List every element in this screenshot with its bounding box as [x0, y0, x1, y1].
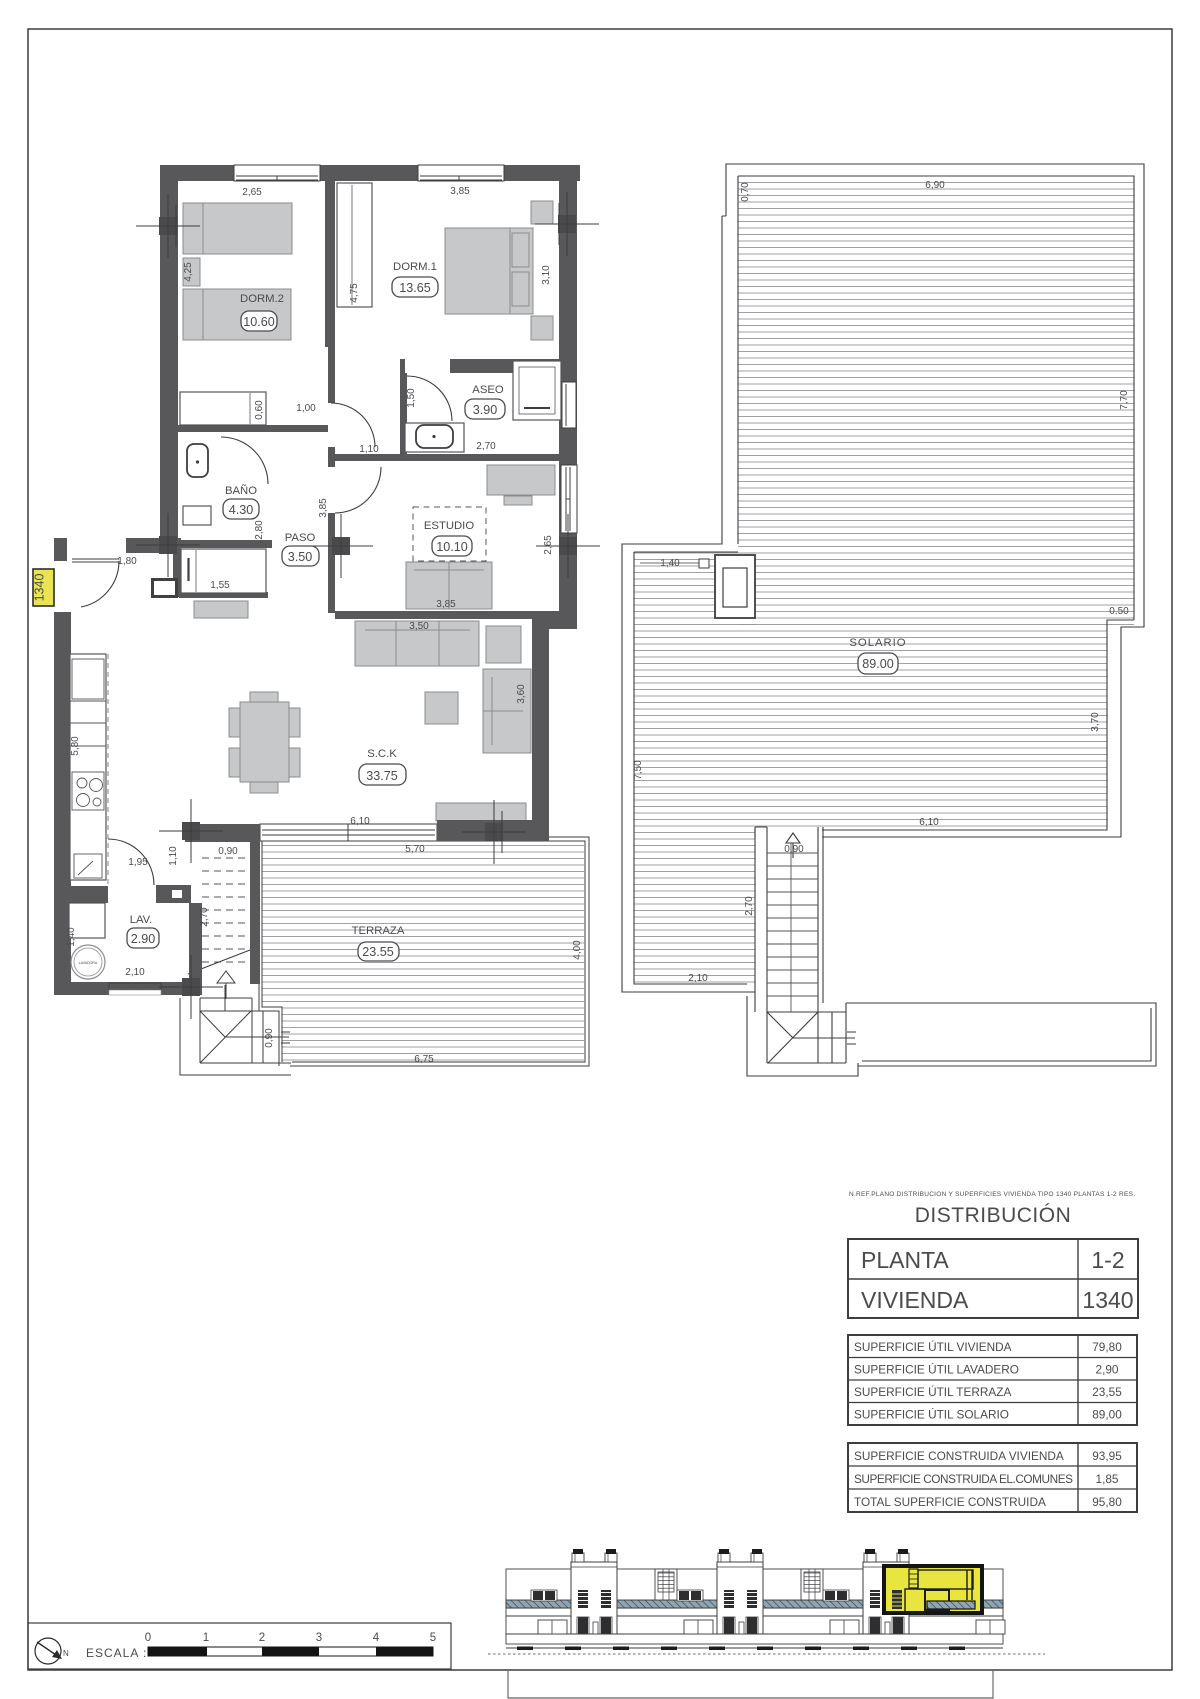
svg-text:2,70: 2,70: [744, 896, 755, 916]
svg-text:2: 2: [259, 1632, 265, 1644]
svg-text:23,55: 23,55: [1092, 1385, 1122, 1399]
svg-text:2,90: 2,90: [1096, 1363, 1119, 1377]
svg-text:13.65: 13.65: [399, 281, 431, 295]
svg-text:SUPERFICIE ÚTIL SOLARIO: SUPERFICIE ÚTIL SOLARIO: [854, 1408, 1009, 1422]
svg-text:SUPERFICIE CONSTRUIDA EL.COMUN: SUPERFICIE CONSTRUIDA EL.COMUNES: [854, 1472, 1073, 1486]
svg-text:7,70: 7,70: [1119, 390, 1130, 410]
svg-text:2.90: 2.90: [131, 932, 156, 946]
svg-text:93,95: 93,95: [1092, 1449, 1122, 1463]
svg-text:TERRAZA: TERRAZA: [352, 925, 405, 937]
svg-text:0: 0: [145, 1632, 151, 1644]
svg-text:3,85: 3,85: [436, 599, 456, 610]
svg-text:0,60: 0,60: [254, 400, 265, 420]
svg-text:1-2: 1-2: [1091, 1247, 1124, 1273]
svg-text:1,10: 1,10: [359, 444, 379, 455]
svg-text:ASEO: ASEO: [472, 384, 504, 396]
svg-text:6,10: 6,10: [919, 817, 939, 828]
svg-text:4: 4: [373, 1632, 380, 1644]
svg-text:SOLARIO: SOLARIO: [849, 637, 906, 649]
svg-text:VIVIENDA: VIVIENDA: [861, 1287, 969, 1313]
svg-text:3,50: 3,50: [409, 621, 429, 632]
svg-text:1,10: 1,10: [168, 846, 179, 866]
svg-text:2,65: 2,65: [543, 535, 554, 555]
svg-text:PASO: PASO: [285, 532, 316, 544]
svg-text:1,80: 1,80: [117, 556, 137, 567]
svg-text:1340: 1340: [33, 574, 47, 602]
svg-text:4,00: 4,00: [572, 940, 583, 960]
svg-text:1,40: 1,40: [66, 927, 77, 947]
svg-text:0,90: 0,90: [218, 846, 238, 857]
svg-text:LAVADORA: LAVADORA: [79, 961, 98, 965]
svg-text:LAV.: LAV.: [130, 914, 153, 926]
svg-text:3,85: 3,85: [318, 498, 329, 518]
svg-text:1,40: 1,40: [660, 558, 680, 569]
svg-text:SUPERFICIE ÚTIL TERRAZA: SUPERFICIE ÚTIL TERRAZA: [854, 1385, 1011, 1399]
svg-text:1: 1: [203, 1632, 209, 1644]
svg-text:2,65: 2,65: [242, 187, 262, 198]
svg-text:0,90: 0,90: [264, 1028, 275, 1048]
svg-text:1,00: 1,00: [296, 403, 316, 414]
svg-text:5,70: 5,70: [405, 844, 425, 855]
svg-text:89,00: 89,00: [1092, 1408, 1122, 1422]
svg-text:BAÑO: BAÑO: [225, 484, 257, 497]
svg-text:1,95: 1,95: [128, 857, 148, 868]
svg-text:ESTUDIO: ESTUDIO: [424, 520, 474, 532]
svg-text:3,85: 3,85: [450, 186, 470, 197]
svg-text:1340: 1340: [1082, 1287, 1133, 1313]
svg-text:DISTRIBUCIÓN: DISTRIBUCIÓN: [915, 1204, 1072, 1227]
svg-text:2,70: 2,70: [199, 907, 210, 927]
svg-text:PLANTA: PLANTA: [861, 1247, 949, 1273]
svg-text:N: N: [63, 1649, 69, 1658]
svg-text:2,70: 2,70: [476, 441, 496, 452]
svg-text:3,60: 3,60: [516, 684, 527, 704]
svg-text:10.60: 10.60: [243, 315, 275, 329]
svg-text:2,80: 2,80: [254, 520, 265, 540]
svg-text:0,90: 0,90: [784, 844, 804, 855]
svg-text:10.10: 10.10: [436, 540, 468, 554]
svg-text:DORM.2: DORM.2: [240, 293, 284, 305]
svg-text:SUPERFICIE ÚTIL LAVADERO: SUPERFICIE ÚTIL LAVADERO: [854, 1363, 1019, 1377]
svg-text:3: 3: [316, 1632, 322, 1644]
svg-text:S.C.K: S.C.K: [367, 748, 397, 760]
svg-text:DORM.1: DORM.1: [393, 261, 437, 273]
svg-text:SUPERFICIE ÚTIL VIVIENDA: SUPERFICIE ÚTIL VIVIENDA: [854, 1340, 1012, 1354]
svg-text:33.75: 33.75: [366, 769, 398, 783]
svg-text:95,80: 95,80: [1092, 1495, 1122, 1509]
svg-text:4,25: 4,25: [183, 262, 194, 282]
svg-text:79,80: 79,80: [1092, 1340, 1122, 1354]
svg-text:1,55: 1,55: [210, 580, 230, 591]
svg-text:1,50: 1,50: [406, 388, 417, 408]
svg-text:3,10: 3,10: [541, 265, 552, 285]
svg-text:2,10: 2,10: [125, 967, 145, 978]
svg-text:3,70: 3,70: [1090, 712, 1101, 732]
svg-text:TOTAL SUPERFICIE CONSTRUIDA: TOTAL SUPERFICIE CONSTRUIDA: [854, 1495, 1046, 1509]
svg-text:7,50: 7,50: [633, 760, 644, 780]
svg-text:N.REF.PLANO DISTRIBUCION Y SUP: N.REF.PLANO DISTRIBUCION Y SUPERFICIES V…: [849, 1191, 1135, 1198]
svg-text:6,10: 6,10: [350, 816, 370, 827]
svg-text:2,10: 2,10: [688, 973, 708, 984]
svg-text:1,85: 1,85: [1096, 1472, 1119, 1486]
svg-text:89.00: 89.00: [862, 657, 894, 671]
svg-text:ESCALA :: ESCALA :: [86, 1646, 147, 1660]
svg-text:3.50: 3.50: [288, 550, 313, 564]
svg-text:23.55: 23.55: [362, 945, 394, 959]
svg-text:0.50: 0.50: [1109, 606, 1129, 617]
svg-text:3.90: 3.90: [473, 403, 498, 417]
svg-text:4,75: 4,75: [349, 283, 360, 303]
svg-text:6,90: 6,90: [925, 180, 945, 191]
svg-text:0,70: 0,70: [740, 182, 751, 202]
svg-text:5,80: 5,80: [70, 736, 81, 756]
svg-text:5: 5: [430, 1632, 436, 1644]
svg-text:4.30: 4.30: [229, 503, 254, 517]
svg-text:6,75: 6,75: [414, 1054, 434, 1065]
svg-text:SUPERFICIE CONSTRUIDA VIVIENDA: SUPERFICIE CONSTRUIDA VIVIENDA: [854, 1449, 1064, 1463]
